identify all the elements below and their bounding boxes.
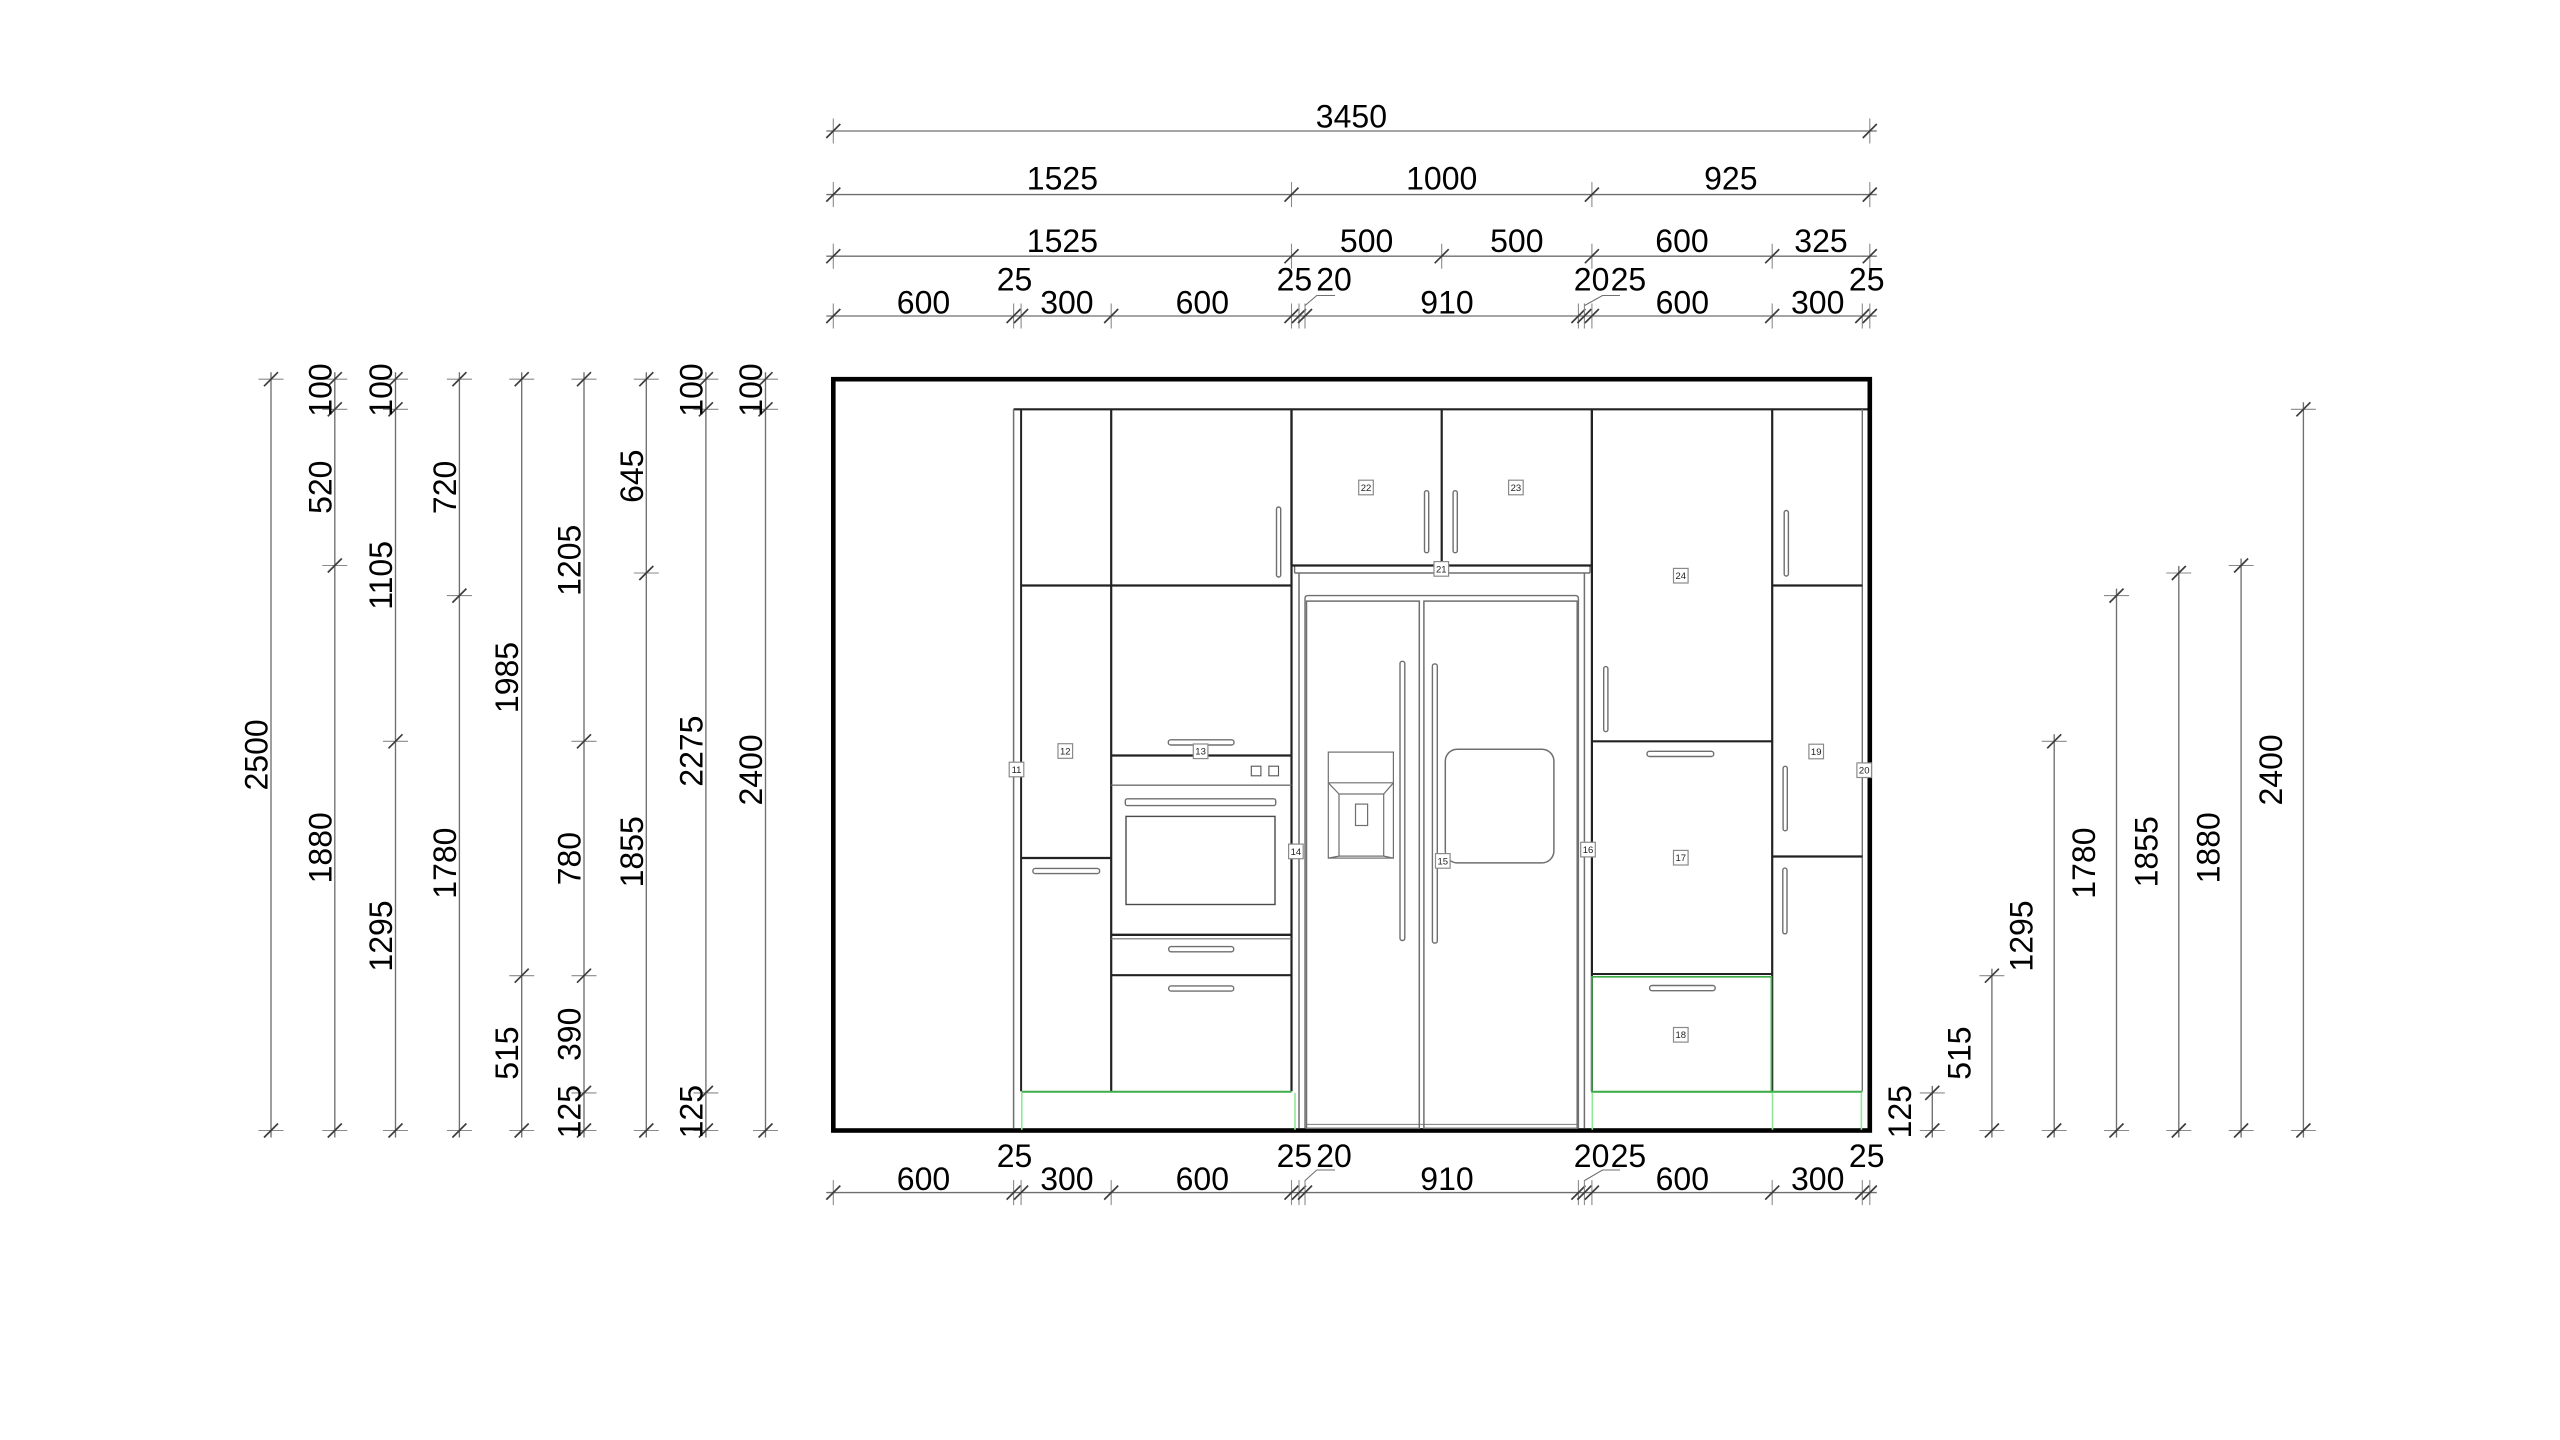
svg-text:300: 300 — [1040, 285, 1093, 321]
svg-text:16: 16 — [1583, 845, 1594, 856]
svg-text:780: 780 — [552, 832, 588, 885]
svg-text:2275: 2275 — [673, 716, 709, 787]
svg-text:300: 300 — [1791, 285, 1844, 321]
svg-text:1985: 1985 — [489, 642, 525, 713]
svg-text:18: 18 — [1676, 1030, 1687, 1041]
svg-text:20: 20 — [1316, 1138, 1352, 1174]
svg-text:720: 720 — [427, 461, 463, 514]
svg-text:1525: 1525 — [1027, 223, 1098, 259]
svg-text:25: 25 — [1277, 262, 1313, 298]
svg-text:13: 13 — [1195, 747, 1206, 758]
svg-text:515: 515 — [1941, 1026, 1977, 1079]
svg-text:24: 24 — [1676, 571, 1687, 582]
svg-text:21: 21 — [1436, 564, 1447, 575]
svg-text:1295: 1295 — [2004, 900, 2040, 971]
svg-text:100: 100 — [302, 363, 338, 416]
svg-text:325: 325 — [1794, 223, 1847, 259]
svg-text:1105: 1105 — [363, 541, 399, 610]
svg-text:500: 500 — [1490, 223, 1543, 259]
svg-text:1880: 1880 — [2191, 812, 2227, 883]
svg-text:300: 300 — [1040, 1161, 1093, 1197]
svg-text:100: 100 — [363, 363, 399, 416]
svg-text:25: 25 — [1849, 1138, 1885, 1174]
svg-text:515: 515 — [489, 1026, 525, 1079]
svg-text:600: 600 — [1656, 285, 1709, 321]
svg-text:1855: 1855 — [614, 816, 650, 887]
svg-text:25: 25 — [1849, 262, 1885, 298]
svg-text:15: 15 — [1438, 856, 1449, 867]
svg-text:645: 645 — [614, 450, 650, 503]
svg-text:1780: 1780 — [427, 828, 463, 899]
svg-text:20: 20 — [1574, 262, 1610, 298]
svg-text:1295: 1295 — [363, 900, 399, 971]
svg-text:1205: 1205 — [552, 525, 588, 596]
svg-text:25: 25 — [1611, 262, 1647, 298]
svg-text:125: 125 — [673, 1085, 709, 1138]
svg-text:17: 17 — [1676, 853, 1687, 864]
svg-text:12: 12 — [1060, 746, 1071, 757]
svg-text:600: 600 — [897, 285, 950, 321]
svg-text:500: 500 — [1340, 223, 1393, 259]
svg-text:25: 25 — [997, 262, 1033, 298]
svg-text:2400: 2400 — [733, 734, 769, 805]
svg-text:3450: 3450 — [1316, 99, 1387, 135]
svg-text:22: 22 — [1361, 483, 1372, 494]
svg-text:520: 520 — [302, 461, 338, 514]
svg-text:300: 300 — [1791, 1161, 1844, 1197]
svg-text:910: 910 — [1420, 1161, 1473, 1197]
svg-text:2500: 2500 — [239, 719, 275, 790]
svg-text:20: 20 — [1859, 766, 1870, 777]
svg-text:25: 25 — [1611, 1138, 1647, 1174]
svg-text:1855: 1855 — [2128, 816, 2164, 887]
svg-text:1780: 1780 — [2066, 828, 2102, 899]
svg-text:23: 23 — [1511, 483, 1522, 494]
svg-text:25: 25 — [1277, 1138, 1313, 1174]
svg-text:14: 14 — [1291, 847, 1302, 858]
svg-text:100: 100 — [673, 363, 709, 416]
svg-text:925: 925 — [1704, 160, 1757, 196]
svg-text:25: 25 — [997, 1138, 1033, 1174]
svg-text:1880: 1880 — [302, 812, 338, 883]
svg-text:11: 11 — [1012, 765, 1022, 776]
svg-text:125: 125 — [552, 1085, 588, 1138]
svg-text:390: 390 — [552, 1008, 588, 1061]
svg-text:125: 125 — [1882, 1085, 1918, 1138]
svg-text:20: 20 — [1574, 1138, 1610, 1174]
svg-text:600: 600 — [1176, 1161, 1229, 1197]
svg-text:1000: 1000 — [1406, 160, 1477, 196]
svg-text:910: 910 — [1420, 285, 1473, 321]
svg-text:1525: 1525 — [1027, 160, 1098, 196]
svg-text:20: 20 — [1316, 262, 1352, 298]
svg-text:600: 600 — [1656, 1161, 1709, 1197]
svg-text:2400: 2400 — [2253, 734, 2289, 805]
svg-text:19: 19 — [1811, 747, 1822, 758]
svg-text:600: 600 — [1655, 223, 1708, 259]
svg-text:600: 600 — [1176, 285, 1229, 321]
svg-text:100: 100 — [733, 363, 769, 416]
svg-text:600: 600 — [897, 1161, 950, 1197]
